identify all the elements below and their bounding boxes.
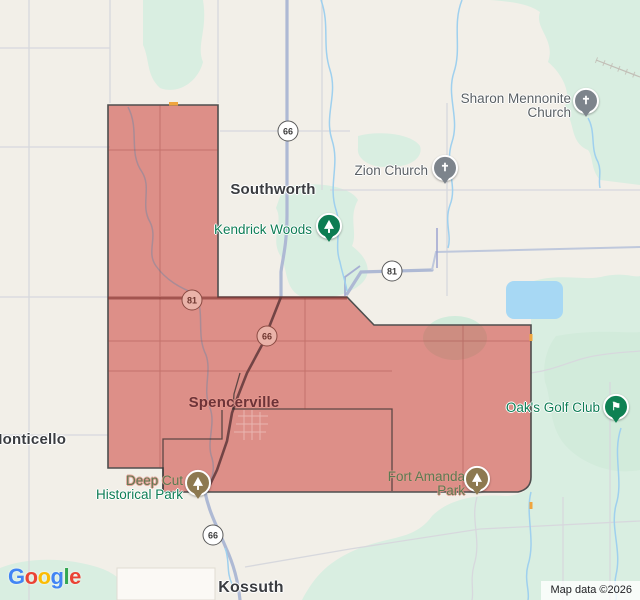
tree-icon [471,472,483,485]
map-label-line: Spencerville [189,394,280,412]
map-canvas[interactable] [0,0,640,600]
map-label-oaks-golf-club[interactable]: Oak's Golf Club [506,401,600,415]
tree-pin[interactable] [316,213,342,239]
church-pin[interactable]: ✝ [432,155,458,181]
map-label-spencerville[interactable]: Spencerville [189,394,280,412]
route-shield-81: 81 [182,290,203,311]
map-label-monticello[interactable]: Monticello [0,431,66,449]
map-viewport[interactable]: Sharon MennoniteChurchZion ChurchSouthwo… [0,0,640,600]
church-pin[interactable]: ✝ [573,88,599,114]
map-label-line: Church [461,106,571,120]
map-label-line: Fort Amanda [388,470,465,484]
map-label-line: Kossuth [218,579,283,597]
map-label-kendrick-woods[interactable]: Kendrick Woods [214,223,312,237]
map-label-line: Southworth [230,181,315,199]
tree-pin[interactable] [185,470,211,496]
map-label-line: Zion Church [354,164,428,178]
marker-tick-top [169,102,178,106]
marker-tick-right-2 [530,502,533,509]
map-label-zion-church[interactable]: Zion Church [354,164,428,178]
google-logo-letter: o [25,564,38,589]
map-label-fort-amanda-park[interactable]: Fort AmandaPark [388,470,465,498]
route-shield-66: 66 [278,121,299,142]
map-label-kossuth[interactable]: Kossuth [218,579,283,597]
tree-icon [323,219,335,232]
map-label-line: Deep Cut [96,474,183,488]
google-logo-letter: e [69,564,81,589]
cross-icon: ✝ [440,162,449,173]
google-logo-letter: G [8,564,25,589]
route-shield-81: 81 [382,261,403,282]
green-area-top-center [143,0,204,90]
map-label-line: Sharon Mennonite [461,92,571,106]
map-label-deep-cut-historical-park[interactable]: Deep CutHistorical Park [96,474,183,502]
cross-icon: ✝ [581,95,590,106]
map-label-southworth[interactable]: Southworth [230,181,315,199]
google-logo-letter: g [51,564,64,589]
golf-pin[interactable]: ⚑ [603,394,629,420]
golf-flag-icon: ⚑ [611,401,621,412]
map-label-sharon-mennonite-church[interactable]: Sharon MennoniteChurch [461,92,571,120]
google-logo[interactable]: Google [8,564,81,590]
map-label-line: Park [388,484,465,498]
map-label-line: Oak's Golf Club [506,401,600,415]
map-label-line: Kendrick Woods [214,223,312,237]
route-shield-66: 66 [203,525,224,546]
map-attribution: Map data ©2026 [541,581,640,600]
map-label-line: Monticello [0,431,66,449]
route-shield-66: 66 [257,326,278,347]
map-label-line: Historical Park [96,488,183,502]
tree-icon [192,476,204,489]
marker-tick-right-1 [530,334,533,341]
tree-pin[interactable] [464,466,490,492]
pond [506,281,563,319]
parcel-block [117,568,215,600]
google-logo-letter: o [38,564,51,589]
